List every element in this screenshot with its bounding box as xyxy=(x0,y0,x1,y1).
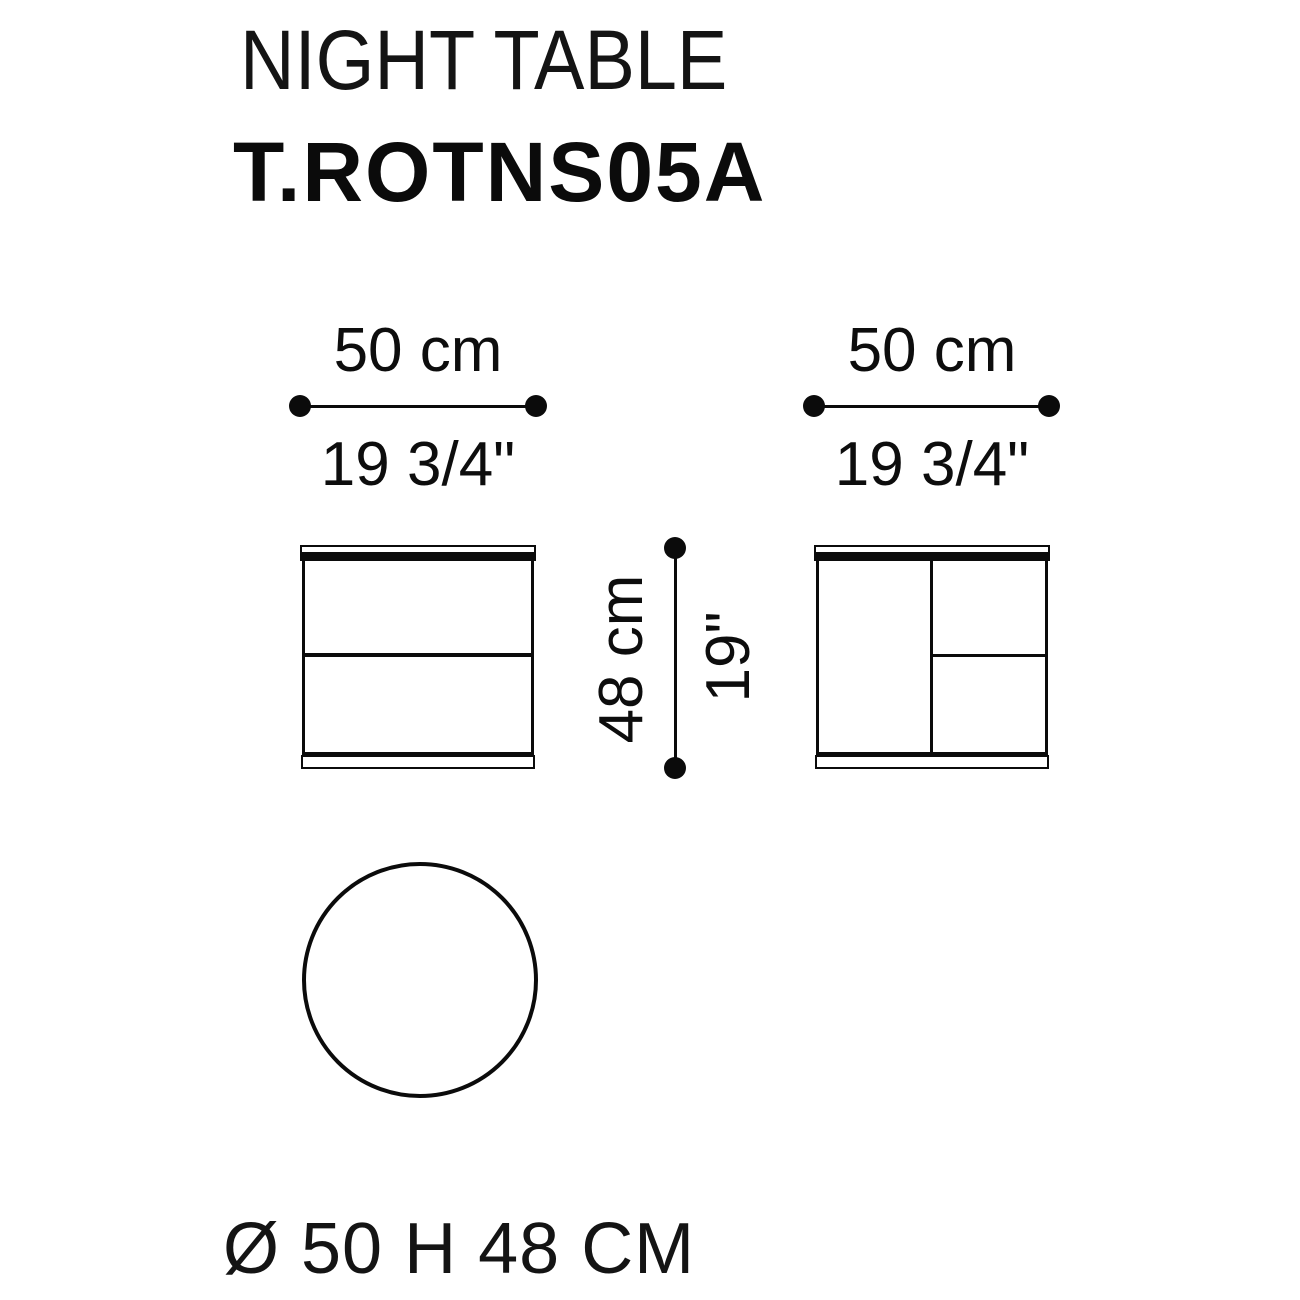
dim-endpoint-dot xyxy=(525,395,547,417)
side-depth-inches-label: 19 3/4" xyxy=(812,434,1052,496)
dim-endpoint-dot xyxy=(664,537,686,559)
dim-endpoint-dot xyxy=(1038,395,1060,417)
front-body xyxy=(302,561,534,755)
dim-endpoint-dot xyxy=(664,757,686,779)
side-top-edge-band xyxy=(814,553,1050,561)
top-view-circle xyxy=(302,862,538,1098)
front-base-plinth xyxy=(301,755,535,769)
dim-endpoint-dot xyxy=(289,395,311,417)
product-model-code: T.ROTNS05A xyxy=(233,130,766,214)
height-inches-label: 19" xyxy=(698,537,760,777)
product-category-title: NIGHT TABLE xyxy=(240,18,727,102)
front-drawer-divider xyxy=(302,653,534,657)
front-top-edge-band xyxy=(300,553,536,561)
side-vertical-divider xyxy=(930,561,933,755)
front-width-dimension-line xyxy=(299,405,537,408)
height-dimension-line xyxy=(674,548,677,768)
spec-sheet: NIGHT TABLE T.ROTNS05A 50 cm 19 3/4" 50 … xyxy=(0,0,1300,1300)
side-depth-dimension-line xyxy=(813,405,1050,408)
side-base-plinth xyxy=(815,755,1049,769)
height-cm-label: 48 cm xyxy=(591,539,653,779)
dim-endpoint-dot xyxy=(803,395,825,417)
front-width-inches-label: 19 3/4" xyxy=(298,434,538,496)
overall-dimensions-summary: Ø 50 H 48 CM xyxy=(223,1213,695,1285)
front-width-cm-label: 50 cm xyxy=(298,320,538,382)
side-depth-cm-label: 50 cm xyxy=(812,320,1052,382)
side-horizontal-divider xyxy=(933,654,1045,657)
